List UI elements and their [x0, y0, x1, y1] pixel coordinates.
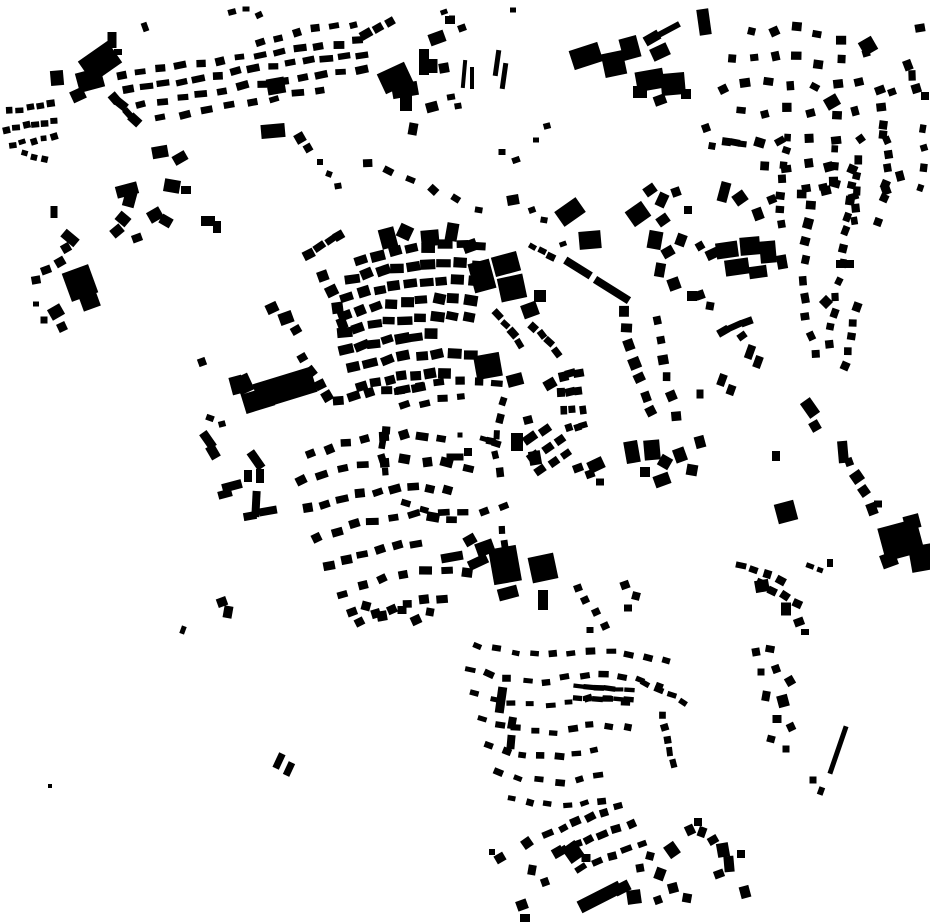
building	[783, 746, 790, 753]
building	[243, 7, 250, 12]
building	[457, 393, 465, 400]
building	[540, 216, 548, 223]
building	[502, 675, 511, 682]
building	[775, 206, 784, 214]
building	[340, 439, 351, 447]
building	[398, 606, 407, 614]
building	[663, 736, 671, 744]
building	[844, 347, 852, 355]
building	[506, 700, 515, 705]
building	[854, 155, 862, 164]
building	[571, 751, 581, 757]
building	[663, 372, 671, 381]
building	[400, 95, 412, 111]
building	[50, 118, 57, 124]
building	[804, 158, 814, 168]
building	[354, 488, 365, 498]
building	[736, 106, 746, 113]
building	[758, 669, 765, 676]
building	[716, 842, 730, 858]
building	[201, 216, 215, 226]
building	[510, 8, 516, 13]
building	[782, 103, 791, 112]
building	[415, 382, 425, 390]
building	[850, 216, 858, 225]
building	[416, 351, 428, 361]
building	[830, 162, 839, 171]
building	[728, 54, 737, 63]
building	[763, 77, 774, 86]
building	[633, 86, 647, 98]
building	[114, 49, 122, 55]
building	[419, 566, 432, 574]
building	[489, 849, 495, 855]
building	[598, 671, 608, 678]
building	[398, 570, 409, 580]
building	[398, 453, 411, 464]
building	[715, 241, 739, 260]
building	[804, 134, 813, 143]
building	[528, 553, 559, 584]
building	[681, 89, 691, 99]
building	[387, 280, 401, 291]
building	[291, 89, 304, 97]
building	[366, 518, 379, 525]
building	[833, 79, 844, 89]
building	[773, 715, 782, 723]
building	[410, 371, 421, 381]
building	[784, 134, 791, 142]
building	[836, 260, 854, 268]
building	[781, 603, 791, 616]
building	[397, 316, 413, 325]
building	[9, 142, 17, 149]
building	[425, 328, 438, 339]
building	[624, 687, 635, 692]
building	[748, 265, 767, 279]
building	[847, 332, 856, 340]
building	[441, 567, 453, 575]
building	[48, 784, 52, 788]
building	[414, 295, 427, 304]
building	[786, 81, 794, 91]
building	[446, 516, 457, 523]
building	[792, 22, 803, 32]
building	[574, 387, 583, 396]
building	[436, 259, 451, 267]
building	[491, 380, 503, 387]
building	[33, 302, 39, 307]
building	[451, 274, 465, 284]
building	[473, 352, 503, 380]
building	[563, 802, 572, 808]
building	[51, 206, 58, 218]
building	[920, 163, 928, 172]
building	[427, 59, 438, 73]
building	[845, 196, 855, 206]
building	[836, 36, 846, 45]
building	[196, 60, 206, 68]
building	[163, 178, 181, 194]
building	[737, 850, 745, 858]
building	[604, 723, 613, 730]
building	[331, 302, 344, 315]
building	[772, 451, 780, 461]
building	[697, 390, 704, 399]
building	[908, 70, 916, 81]
building	[531, 728, 539, 734]
building	[659, 712, 666, 719]
building	[463, 294, 478, 307]
building	[50, 70, 64, 86]
building	[369, 377, 381, 387]
building	[423, 367, 437, 379]
building	[555, 779, 565, 787]
building	[36, 102, 45, 109]
building	[594, 685, 604, 691]
building	[801, 184, 811, 193]
building	[26, 103, 34, 110]
building	[244, 470, 252, 482]
building	[883, 163, 892, 172]
building	[568, 725, 579, 733]
building	[41, 317, 48, 324]
building	[827, 559, 833, 567]
building	[335, 69, 346, 75]
building	[560, 406, 567, 415]
building	[624, 605, 632, 612]
building	[511, 433, 523, 451]
building	[837, 55, 845, 64]
building	[31, 121, 40, 128]
building	[257, 81, 267, 88]
building	[403, 278, 417, 288]
building	[810, 777, 817, 784]
building	[157, 98, 168, 106]
building	[108, 32, 117, 48]
building	[750, 54, 759, 62]
building	[334, 182, 342, 189]
building	[791, 51, 802, 59]
building	[573, 695, 583, 701]
building	[425, 607, 434, 616]
building	[557, 388, 565, 397]
building	[583, 684, 594, 690]
building	[381, 386, 392, 394]
building	[596, 479, 604, 486]
building	[523, 678, 533, 684]
building	[603, 696, 614, 702]
building	[778, 174, 786, 183]
building	[319, 55, 333, 63]
building	[394, 387, 406, 395]
building	[623, 696, 634, 702]
building	[779, 161, 787, 169]
building	[534, 290, 546, 302]
building	[302, 502, 313, 513]
building	[777, 220, 786, 229]
building	[12, 124, 20, 130]
building	[554, 752, 564, 760]
building	[317, 159, 323, 165]
building	[826, 322, 835, 330]
building	[884, 150, 893, 160]
building	[546, 702, 556, 708]
building	[414, 314, 426, 323]
building	[46, 99, 55, 107]
building	[496, 467, 504, 477]
building	[376, 610, 388, 622]
building	[831, 145, 838, 152]
building	[582, 854, 591, 862]
building	[433, 378, 444, 386]
building	[530, 650, 539, 656]
building	[666, 747, 673, 757]
building	[401, 297, 414, 307]
building	[597, 798, 606, 806]
building	[592, 696, 603, 702]
building	[435, 277, 447, 286]
building	[534, 776, 544, 783]
building	[578, 230, 601, 250]
building	[759, 240, 777, 263]
building	[528, 450, 542, 466]
building	[800, 312, 810, 321]
building	[684, 206, 692, 214]
building	[420, 259, 436, 270]
building	[422, 457, 433, 468]
building	[536, 752, 544, 759]
building	[266, 77, 287, 96]
building	[420, 278, 434, 287]
building	[541, 679, 550, 686]
building	[565, 699, 573, 704]
building	[155, 64, 166, 72]
building	[455, 377, 464, 385]
building	[879, 120, 888, 130]
building	[437, 395, 447, 402]
building	[256, 469, 264, 483]
building	[526, 701, 534, 706]
building	[447, 293, 459, 304]
building	[919, 124, 927, 133]
building	[635, 863, 644, 872]
building	[260, 123, 285, 139]
building	[621, 323, 632, 332]
building	[15, 107, 23, 113]
building	[527, 864, 537, 875]
building	[366, 339, 380, 349]
building	[520, 914, 530, 922]
building	[447, 454, 464, 461]
map-svg	[0, 0, 930, 924]
building	[724, 257, 750, 276]
building	[445, 16, 455, 24]
building	[801, 629, 809, 635]
building	[874, 501, 882, 508]
building	[568, 405, 575, 413]
building	[682, 893, 692, 903]
building	[447, 348, 461, 359]
building	[615, 687, 624, 691]
building	[499, 149, 506, 155]
building	[40, 135, 46, 141]
building	[832, 111, 842, 120]
building	[694, 818, 702, 826]
building	[687, 291, 697, 301]
building	[436, 595, 448, 604]
building	[383, 317, 395, 325]
building	[506, 194, 520, 206]
building	[671, 411, 682, 421]
building	[606, 649, 616, 654]
building	[587, 627, 594, 633]
building	[538, 590, 548, 610]
building	[583, 696, 592, 701]
building	[333, 396, 344, 406]
building	[506, 735, 515, 750]
building	[409, 332, 423, 342]
building	[213, 221, 221, 233]
building	[194, 90, 207, 98]
building	[579, 405, 587, 414]
building	[849, 319, 857, 326]
building	[751, 647, 760, 656]
building	[438, 62, 450, 74]
building	[585, 647, 595, 655]
building	[418, 594, 429, 604]
building	[812, 350, 820, 358]
building	[310, 24, 320, 33]
building	[518, 752, 526, 759]
building	[430, 311, 445, 323]
building	[806, 201, 816, 210]
building	[705, 301, 714, 310]
building	[619, 306, 629, 317]
building	[464, 448, 472, 456]
building	[549, 730, 558, 736]
building	[453, 257, 467, 268]
building	[686, 464, 699, 477]
building	[6, 107, 13, 114]
building	[775, 192, 785, 201]
building	[626, 889, 642, 905]
building	[213, 72, 223, 80]
building	[585, 721, 594, 728]
building	[739, 236, 760, 256]
building	[914, 23, 925, 33]
building	[31, 275, 41, 284]
building	[357, 461, 369, 468]
building	[760, 161, 769, 170]
building	[458, 433, 463, 438]
building	[656, 336, 665, 345]
building	[438, 509, 450, 516]
building	[566, 650, 576, 657]
building	[41, 120, 49, 127]
building	[407, 482, 419, 490]
building	[643, 439, 661, 460]
building	[921, 92, 929, 100]
building	[474, 206, 482, 213]
building	[438, 368, 451, 379]
building	[177, 94, 188, 101]
building	[493, 430, 499, 439]
building-map	[0, 0, 930, 924]
building	[723, 856, 734, 873]
building	[268, 63, 278, 70]
building	[624, 723, 633, 731]
building	[420, 229, 439, 247]
building	[708, 142, 716, 150]
building	[761, 690, 771, 701]
building	[363, 159, 373, 167]
building	[454, 102, 462, 109]
building	[457, 509, 468, 515]
building	[876, 103, 886, 112]
building	[390, 264, 404, 274]
building	[396, 370, 407, 380]
building	[234, 54, 244, 61]
building	[315, 87, 325, 95]
building	[385, 299, 397, 309]
building	[334, 41, 345, 49]
building	[737, 140, 746, 147]
building	[499, 526, 506, 534]
building	[533, 138, 539, 143]
building	[831, 136, 842, 145]
building	[181, 186, 191, 194]
building	[657, 354, 669, 365]
building	[548, 650, 557, 657]
building	[813, 59, 824, 69]
building	[382, 468, 389, 476]
building	[831, 293, 838, 301]
building	[739, 78, 751, 88]
building	[754, 579, 770, 593]
building	[825, 340, 834, 349]
building	[470, 67, 474, 89]
building	[799, 276, 807, 286]
building	[382, 426, 391, 434]
building	[640, 467, 650, 477]
